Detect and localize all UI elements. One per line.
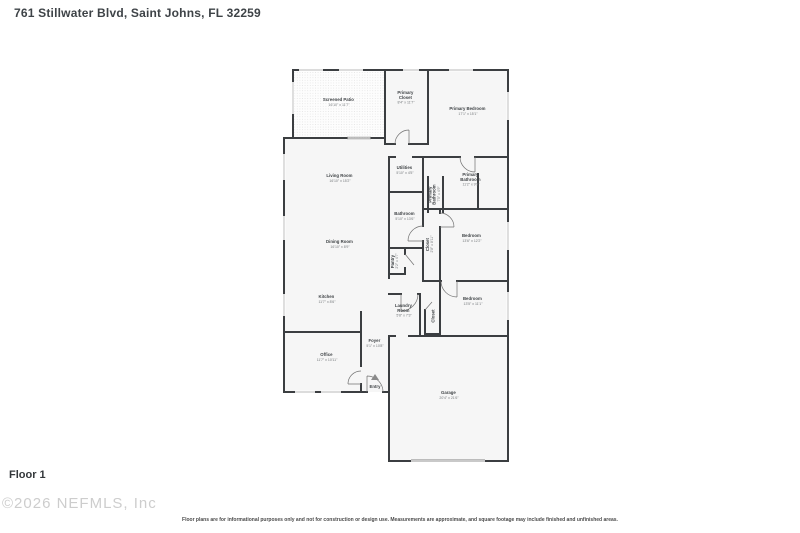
room-label-hall-closet: Closet 2'8" x 8'11" (425, 235, 434, 253)
disclaimer: Floor plans are for informational purpos… (0, 517, 800, 523)
room-label-garage: Garage 20'4" x 21'6" (439, 390, 459, 400)
room-label-laundry-closet: Closet (431, 309, 436, 323)
watermark: ©2026 NEFMLS, Inc (2, 495, 157, 512)
room-label-pantry: Pantry 2'2" x 4'7" (390, 253, 399, 269)
page-title: 761 Stillwater Blvd, Saint Johns, FL 322… (14, 6, 261, 20)
floor-plan-svg: Screened Patio 16'10" x 11'7" Primary Cl… (283, 66, 511, 466)
floor-label: Floor 1 (9, 469, 46, 481)
room-label-kitchen: Kitchen 11'7" x 8'6" (319, 294, 337, 304)
room-label-bedroom-2: Bedroom 13'5" x 11'1" (463, 296, 483, 306)
room-label-primary-closet: Primary Closet 8'4" x 11'7" (397, 90, 415, 105)
room-label-laundry-room: Laundry Room 5'8" x 7'3" (395, 303, 413, 318)
room-label-bathroom: Bathroom 5'10" x 13'6" (394, 211, 416, 221)
room-label-living-room: Living Room 16'10" x 15'2" (326, 173, 353, 183)
floor-plan-page: { "header": { "address": "761 Stillwater… (0, 0, 800, 533)
room-label-primary-bathroom-wc: Primary Bathroom 7'5" x 4'9" (428, 183, 441, 205)
room-label-bedroom-1: Bedroom 13'6" x 12'2" (462, 233, 482, 243)
room-label-utilities: Utilities 5'10" x 4'5" (396, 165, 414, 175)
room-label-primary-bathroom: Primary Bathroom 11'2" x 9'9" (460, 172, 482, 187)
room-label-entry: Entry (370, 384, 382, 389)
